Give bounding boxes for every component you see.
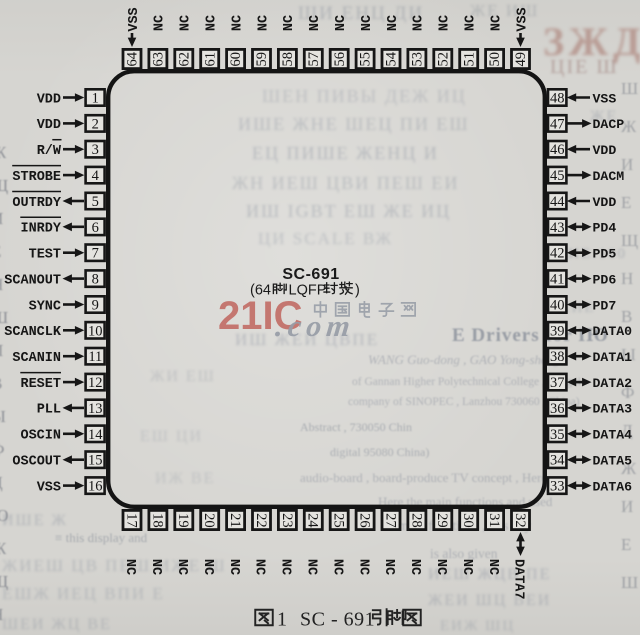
svg-text:62: 62: [176, 52, 192, 67]
svg-text:VSS: VSS: [37, 480, 61, 495]
svg-text:3: 3: [92, 142, 99, 158]
svg-text:PD5: PD5: [593, 247, 617, 262]
svg-text:DATA1: DATA1: [593, 350, 633, 365]
svg-text:4: 4: [92, 168, 100, 184]
svg-text:SCANIN: SCANIN: [12, 351, 61, 366]
svg-text:NC: NC: [438, 15, 453, 31]
svg-text:40: 40: [550, 298, 565, 314]
svg-text:61: 61: [202, 52, 218, 67]
svg-text:NC: NC: [360, 15, 375, 31]
svg-text:VDD: VDD: [593, 143, 617, 158]
svg-text:60: 60: [228, 52, 244, 67]
svg-text:VDD: VDD: [593, 195, 617, 210]
svg-text:SC-691: SC-691: [282, 266, 339, 283]
svg-text:34: 34: [550, 453, 565, 469]
svg-text:5: 5: [92, 194, 99, 210]
svg-text:VSS: VSS: [127, 7, 142, 31]
svg-text:45: 45: [550, 168, 565, 184]
svg-text:29: 29: [434, 513, 450, 528]
svg-text:VSS: VSS: [593, 91, 617, 106]
svg-text:DATA5: DATA5: [593, 454, 633, 469]
svg-text:36: 36: [550, 401, 565, 417]
svg-text:SC - 691: SC - 691: [300, 609, 375, 631]
svg-text:2: 2: [92, 116, 99, 132]
svg-text:NC: NC: [252, 559, 267, 575]
svg-text:39: 39: [550, 323, 565, 339]
svg-text:NC: NC: [153, 15, 168, 31]
svg-text:58: 58: [280, 52, 296, 67]
svg-text:NC: NC: [329, 559, 344, 575]
svg-text:R/W: R/W: [37, 144, 62, 159]
svg-text:9: 9: [92, 298, 99, 314]
svg-text:1: 1: [92, 91, 99, 107]
svg-text:57: 57: [306, 52, 322, 67]
svg-text:SCANOUT: SCANOUT: [4, 273, 61, 288]
svg-text:64: 64: [125, 51, 141, 66]
svg-text:NC: NC: [304, 559, 319, 575]
svg-text:27: 27: [382, 513, 398, 528]
svg-text:NC: NC: [459, 559, 474, 575]
svg-text:NC: NC: [174, 559, 189, 575]
svg-text:SYNC: SYNC: [29, 299, 61, 314]
svg-text:53: 53: [410, 52, 426, 67]
svg-text:DATA0: DATA0: [593, 324, 633, 339]
svg-text:): ): [355, 283, 360, 299]
svg-text:NC: NC: [412, 15, 427, 31]
svg-text:47: 47: [550, 116, 565, 132]
svg-text:19: 19: [175, 513, 191, 528]
svg-text:1: 1: [277, 609, 287, 631]
svg-text:NC: NC: [407, 559, 422, 575]
svg-text:18: 18: [149, 513, 165, 528]
svg-text:DACP: DACP: [593, 117, 625, 132]
svg-text:NC: NC: [334, 15, 349, 31]
svg-text:NC: NC: [464, 15, 479, 31]
svg-text:28: 28: [408, 513, 424, 528]
svg-text:13: 13: [88, 401, 103, 417]
svg-text:31: 31: [486, 513, 502, 528]
svg-text:42: 42: [550, 246, 565, 262]
svg-text:VDD: VDD: [37, 92, 61, 107]
svg-text:PD4: PD4: [593, 221, 617, 236]
svg-text:NC: NC: [200, 559, 215, 575]
svg-text:21: 21: [227, 513, 243, 528]
svg-text:49: 49: [513, 52, 529, 67]
svg-text:NC: NC: [308, 15, 323, 31]
svg-text:41: 41: [550, 272, 565, 288]
svg-text:.com: .com: [274, 309, 357, 343]
svg-text:TEST: TEST: [29, 248, 61, 263]
svg-text:PLL: PLL: [37, 403, 61, 418]
svg-text:STROBE: STROBE: [12, 170, 61, 185]
svg-text:OUTRDY: OUTRDY: [12, 196, 62, 211]
svg-text:6: 6: [92, 220, 99, 236]
svg-text:55: 55: [358, 52, 374, 67]
svg-text:46: 46: [550, 142, 565, 158]
svg-text:NC: NC: [230, 15, 245, 31]
svg-text:NC: NC: [205, 15, 220, 31]
svg-text:NC: NC: [148, 559, 163, 575]
svg-text:54: 54: [384, 51, 400, 66]
svg-text:25: 25: [331, 513, 347, 528]
svg-text:10: 10: [88, 323, 103, 339]
svg-text:11: 11: [88, 349, 102, 365]
svg-text:PD7: PD7: [593, 298, 617, 313]
svg-text:NC: NC: [433, 559, 448, 575]
svg-text:NC: NC: [179, 15, 194, 31]
svg-text:NC: NC: [256, 15, 271, 31]
svg-text:24: 24: [305, 513, 321, 528]
svg-text:NC: NC: [226, 559, 241, 575]
svg-text:56: 56: [332, 52, 348, 67]
svg-text:NC: NC: [278, 559, 293, 575]
svg-text:NC: NC: [386, 15, 401, 31]
svg-text:DATA4: DATA4: [593, 428, 633, 443]
svg-text:7: 7: [92, 246, 99, 262]
svg-text:17: 17: [123, 513, 139, 528]
svg-text:43: 43: [550, 220, 565, 236]
svg-text:DATA6: DATA6: [593, 479, 633, 494]
svg-text:SCANCLK: SCANCLK: [4, 325, 62, 340]
svg-text:DATA7: DATA7: [511, 559, 526, 600]
svg-text:RESET: RESET: [20, 377, 61, 392]
svg-text:35: 35: [550, 427, 565, 443]
svg-text:50: 50: [487, 52, 503, 67]
svg-text:38: 38: [550, 349, 565, 365]
svg-text:30: 30: [460, 513, 476, 528]
svg-text:22: 22: [253, 513, 269, 528]
svg-text:48: 48: [550, 91, 565, 107]
svg-text:16: 16: [88, 479, 103, 495]
svg-text:14: 14: [88, 427, 103, 443]
svg-text:NC: NC: [282, 15, 297, 31]
svg-text:VSS: VSS: [515, 7, 530, 31]
svg-text:NC: NC: [355, 559, 370, 575]
svg-text:OSCOUT: OSCOUT: [12, 455, 61, 470]
svg-text:DACM: DACM: [593, 169, 625, 184]
svg-text:8: 8: [92, 272, 99, 288]
svg-text:NC: NC: [485, 559, 500, 575]
svg-text:NC: NC: [122, 559, 137, 575]
svg-text:VDD: VDD: [37, 118, 61, 133]
svg-text:DATA2: DATA2: [593, 376, 633, 391]
svg-text:26: 26: [357, 513, 373, 528]
svg-text:20: 20: [201, 513, 217, 528]
svg-text:PD6: PD6: [593, 272, 617, 287]
svg-text:NC: NC: [489, 15, 504, 31]
svg-text:OSCIN: OSCIN: [20, 429, 61, 444]
svg-text:51: 51: [461, 52, 477, 67]
svg-text:32: 32: [512, 513, 528, 528]
svg-text:33: 33: [550, 479, 565, 495]
svg-text:23: 23: [279, 513, 295, 528]
svg-text:INRDY: INRDY: [20, 222, 61, 237]
svg-text:59: 59: [254, 52, 270, 67]
svg-text:DATA3: DATA3: [593, 402, 633, 417]
svg-text:44: 44: [550, 194, 565, 210]
svg-text:37: 37: [550, 375, 565, 391]
svg-text:15: 15: [88, 453, 103, 469]
svg-text:12: 12: [88, 375, 103, 391]
svg-text:52: 52: [435, 52, 451, 67]
svg-text:63: 63: [151, 52, 167, 67]
svg-text:NC: NC: [381, 559, 396, 575]
